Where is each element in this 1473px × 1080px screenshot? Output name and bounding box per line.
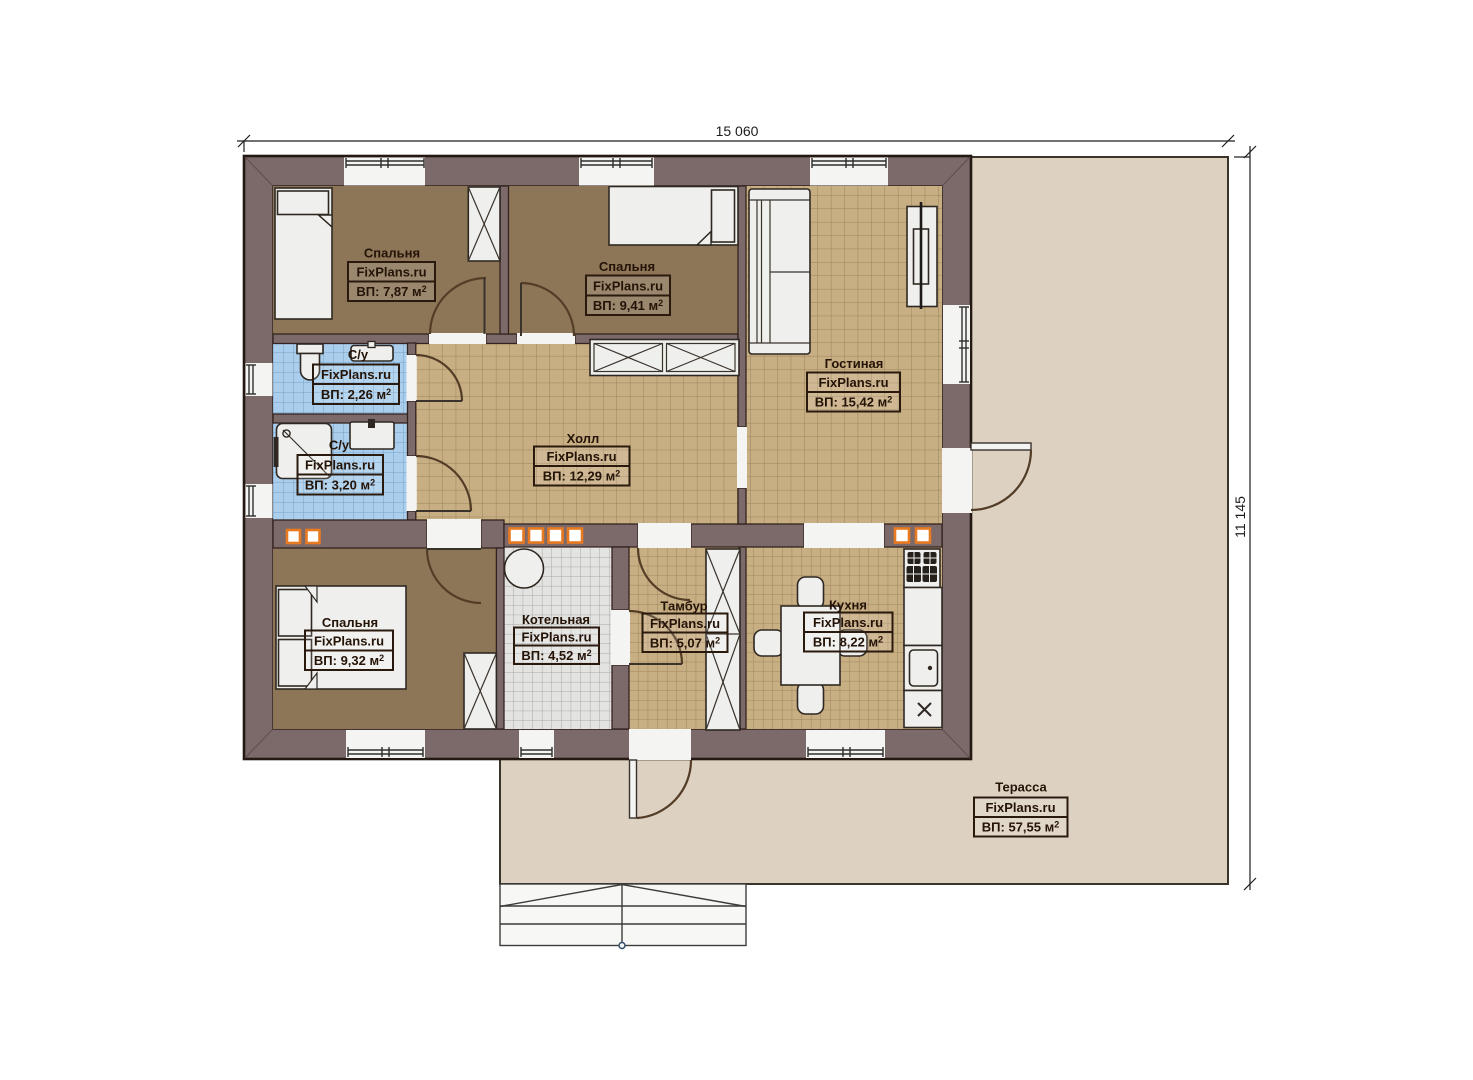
svg-text:Кухня: Кухня <box>829 598 867 613</box>
svg-text:ВП: 7,87 м2: ВП: 7,87 м2 <box>356 284 426 299</box>
svg-text:ВП: 8,22 м2: ВП: 8,22 м2 <box>813 635 883 650</box>
svg-text:Холл: Холл <box>567 431 600 446</box>
svg-text:ВП: 12,29 м2: ВП: 12,29 м2 <box>543 469 620 484</box>
svg-text:ВП: 15,42 м2: ВП: 15,42 м2 <box>815 395 892 410</box>
svg-text:Спальня: Спальня <box>322 615 378 630</box>
svg-text:ВП: 5,07 м2: ВП: 5,07 м2 <box>650 636 720 651</box>
svg-text:FixPlans.ru: FixPlans.ru <box>546 449 616 464</box>
svg-text:С/у: С/у <box>348 347 369 362</box>
svg-text:ВП: 9,41 м2: ВП: 9,41 м2 <box>593 298 663 313</box>
svg-text:ВП: 4,52 м2: ВП: 4,52 м2 <box>521 648 591 663</box>
svg-text:С/у: С/у <box>329 438 350 453</box>
svg-text:ВП: 57,55 м2: ВП: 57,55 м2 <box>982 820 1059 835</box>
svg-text:FixPlans.ru: FixPlans.ru <box>314 634 384 649</box>
svg-text:FixPlans.ru: FixPlans.ru <box>813 615 883 630</box>
svg-text:FixPlans.ru: FixPlans.ru <box>321 367 391 382</box>
svg-text:11 145: 11 145 <box>1232 496 1248 538</box>
svg-text:ВП: 2,26 м2: ВП: 2,26 м2 <box>321 387 391 402</box>
svg-text:FixPlans.ru: FixPlans.ru <box>593 279 663 294</box>
svg-text:Тамбур: Тамбур <box>660 599 707 614</box>
svg-text:FixPlans.ru: FixPlans.ru <box>818 375 888 390</box>
svg-text:FixPlans.ru: FixPlans.ru <box>521 630 591 645</box>
svg-text:Спальня: Спальня <box>364 246 420 261</box>
svg-text:Спальня: Спальня <box>599 259 655 274</box>
svg-text:Терасса: Терасса <box>995 780 1047 795</box>
svg-text:FixPlans.ru: FixPlans.ru <box>305 458 375 473</box>
svg-text:ВП: 9,32 м2: ВП: 9,32 м2 <box>314 653 384 668</box>
svg-text:15 060: 15 060 <box>716 123 759 139</box>
svg-text:Котельная: Котельная <box>522 612 590 627</box>
svg-text:FixPlans.ru: FixPlans.ru <box>985 800 1055 815</box>
svg-text:FixPlans.ru: FixPlans.ru <box>356 265 426 280</box>
svg-text:ВП: 3,20 м2: ВП: 3,20 м2 <box>305 478 375 493</box>
svg-text:Гостиная: Гостиная <box>825 356 884 371</box>
svg-text:FixPlans.ru: FixPlans.ru <box>650 616 720 631</box>
